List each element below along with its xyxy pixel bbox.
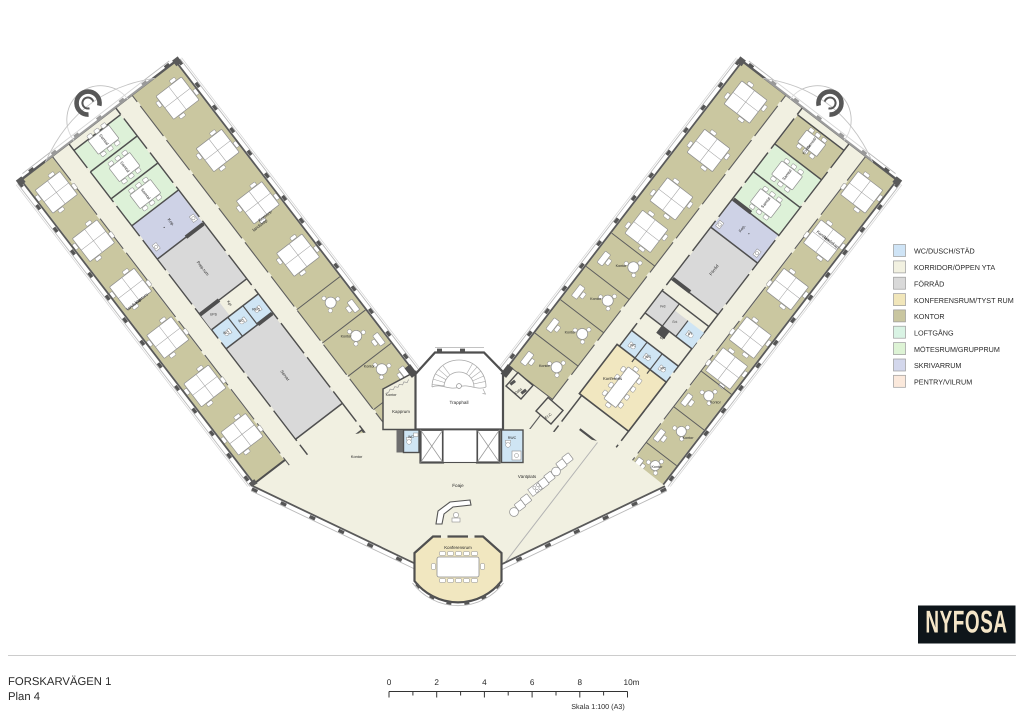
svg-text:6: 6: [530, 678, 535, 687]
svg-text:2: 2: [434, 678, 439, 687]
svg-text:Kontor: Kontor: [651, 465, 663, 469]
svg-text:WC: WC: [630, 344, 636, 348]
svg-text:Kontor: Kontor: [590, 297, 602, 301]
svg-text:Kontor: Kontor: [683, 436, 695, 440]
svg-text:WC: WC: [408, 435, 414, 439]
svg-text:Plan 4: Plan 4: [8, 691, 40, 703]
svg-text:NYFOSA: NYFOSA: [925, 604, 1007, 640]
svg-text:Kontor: Kontor: [364, 365, 376, 369]
svg-text:KONFERENSRUM/TYST RUM: KONFERENSRUM/TYST RUM: [914, 296, 1014, 305]
svg-text:KONTOR: KONTOR: [914, 312, 945, 321]
svg-text:FÖRRÅD: FÖRRÅD: [914, 279, 944, 288]
svg-text:8: 8: [578, 678, 583, 687]
svg-text:Konferens: Konferens: [603, 376, 622, 381]
svg-text:Kontor: Kontor: [616, 264, 628, 268]
svg-text:WC: WC: [660, 367, 666, 371]
svg-text:Kontor: Kontor: [386, 393, 398, 397]
svg-text:MÖTESRUM/GRUPPRUM: MÖTESRUM/GRUPPRUM: [914, 345, 1000, 354]
svg-text:4: 4: [482, 678, 487, 687]
svg-text:FORSKARVÄGEN 1: FORSKARVÄGEN 1: [8, 675, 111, 688]
svg-text:Konferensrum: Konferensrum: [444, 545, 472, 550]
svg-text:WC: WC: [238, 319, 244, 323]
svg-text:Kontor: Kontor: [351, 454, 363, 459]
svg-text:Kontor: Kontor: [710, 400, 722, 404]
svg-text:WC/DUSCH/STÄD: WC/DUSCH/STÄD: [914, 247, 975, 256]
svg-text:WC: WC: [223, 331, 229, 335]
svg-text:KORRIDOR/ÖPPEN YTA: KORRIDOR/ÖPPEN YTA: [914, 263, 995, 272]
svg-text:Foaje: Foaje: [452, 483, 464, 488]
svg-text:Frö: Frö: [673, 320, 678, 324]
svg-text:SKRIVARRUM: SKRIVARRUM: [914, 361, 961, 370]
svg-text:Kontor: Kontor: [341, 335, 353, 339]
svg-text:Kpr: Kpr: [660, 336, 666, 340]
svg-text:Kontor: Kontor: [539, 364, 551, 368]
svg-text:RWC: RWC: [508, 436, 517, 440]
svg-text:Väntplats: Väntplats: [518, 474, 537, 479]
svg-text:0: 0: [387, 678, 392, 687]
svg-text:Skala 1:100 (A3): Skala 1:100 (A3): [571, 702, 625, 711]
svg-text:ST: ST: [688, 332, 692, 336]
svg-text:Frd: Frd: [660, 305, 665, 309]
svg-text:Trapphall: Trapphall: [450, 400, 469, 405]
svg-text:UPS: UPS: [210, 313, 218, 317]
svg-text:Kontor: Kontor: [565, 330, 577, 334]
svg-text:RWC: RWC: [252, 308, 261, 312]
svg-text:10m: 10m: [624, 678, 640, 687]
svg-text:LOFTGÅNG: LOFTGÅNG: [914, 328, 954, 337]
svg-text:PENTRY/VILRUM: PENTRY/VILRUM: [914, 378, 972, 387]
svg-text:Kapprum: Kapprum: [392, 409, 410, 414]
svg-text:WC: WC: [645, 355, 651, 359]
